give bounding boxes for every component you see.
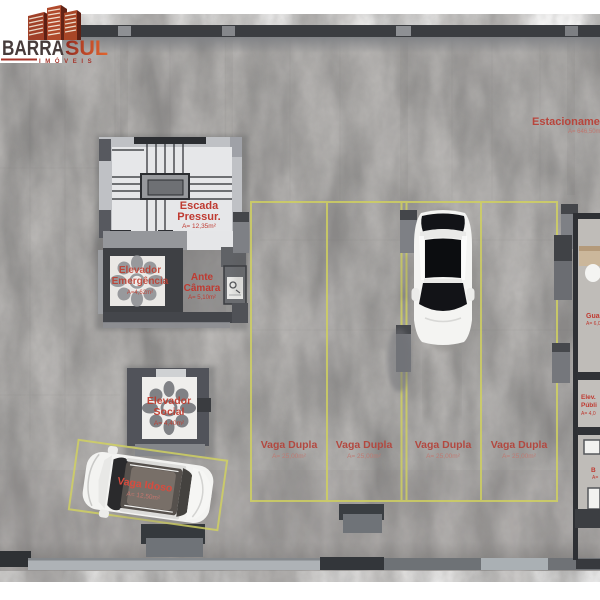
svg-text:A= 25,00m²: A= 25,00m²: [426, 453, 461, 460]
svg-text:A= 646,50m²: A= 646,50m²: [568, 129, 600, 135]
svg-text:Pressur.: Pressur.: [177, 211, 220, 223]
svg-text:Ante: Ante: [191, 272, 214, 283]
svg-text:SUL: SUL: [65, 37, 108, 60]
svg-text:Públi: Públi: [581, 402, 597, 409]
svg-text:A= 25,00m²: A= 25,00m²: [272, 453, 307, 460]
svg-text:B: B: [591, 467, 596, 474]
svg-text:BARRA: BARRA: [2, 37, 64, 60]
svg-text:A= 25,00m²: A= 25,00m²: [502, 453, 537, 460]
svg-text:Elev.: Elev.: [581, 394, 596, 401]
svg-text:A= 6,00m²: A= 6,00m²: [586, 321, 600, 327]
svg-text:A=4,62m²: A=4,62m²: [127, 290, 153, 296]
svg-text:A= 25,00m²: A= 25,00m²: [347, 453, 382, 460]
svg-text:Vaga Dupla: Vaga Dupla: [415, 439, 472, 451]
svg-text:Elevador: Elevador: [119, 265, 161, 276]
svg-text:Estacionamento: Estacionamento: [532, 116, 600, 128]
svg-text:IMÓVEIS: IMÓVEIS: [39, 57, 96, 65]
svg-text:A= 4,0: A= 4,0: [581, 411, 596, 417]
svg-text:Social: Social: [154, 406, 185, 418]
svg-text:A= 5,10m²: A= 5,10m²: [188, 295, 216, 301]
svg-text:A=: A=: [592, 475, 598, 481]
svg-text:Guarita: Guarita: [586, 313, 600, 320]
svg-text:A= 12,35m²: A= 12,35m²: [182, 223, 217, 230]
svg-text:Vaga Dupla: Vaga Dupla: [336, 439, 393, 451]
svg-text:A= 4,40m²: A= 4,40m²: [154, 420, 185, 427]
svg-text:Emergência: Emergência: [112, 276, 169, 287]
svg-text:Vaga Dupla: Vaga Dupla: [491, 439, 548, 451]
svg-text:Vaga Dupla: Vaga Dupla: [261, 439, 318, 451]
svg-text:Câmara: Câmara: [184, 283, 221, 294]
